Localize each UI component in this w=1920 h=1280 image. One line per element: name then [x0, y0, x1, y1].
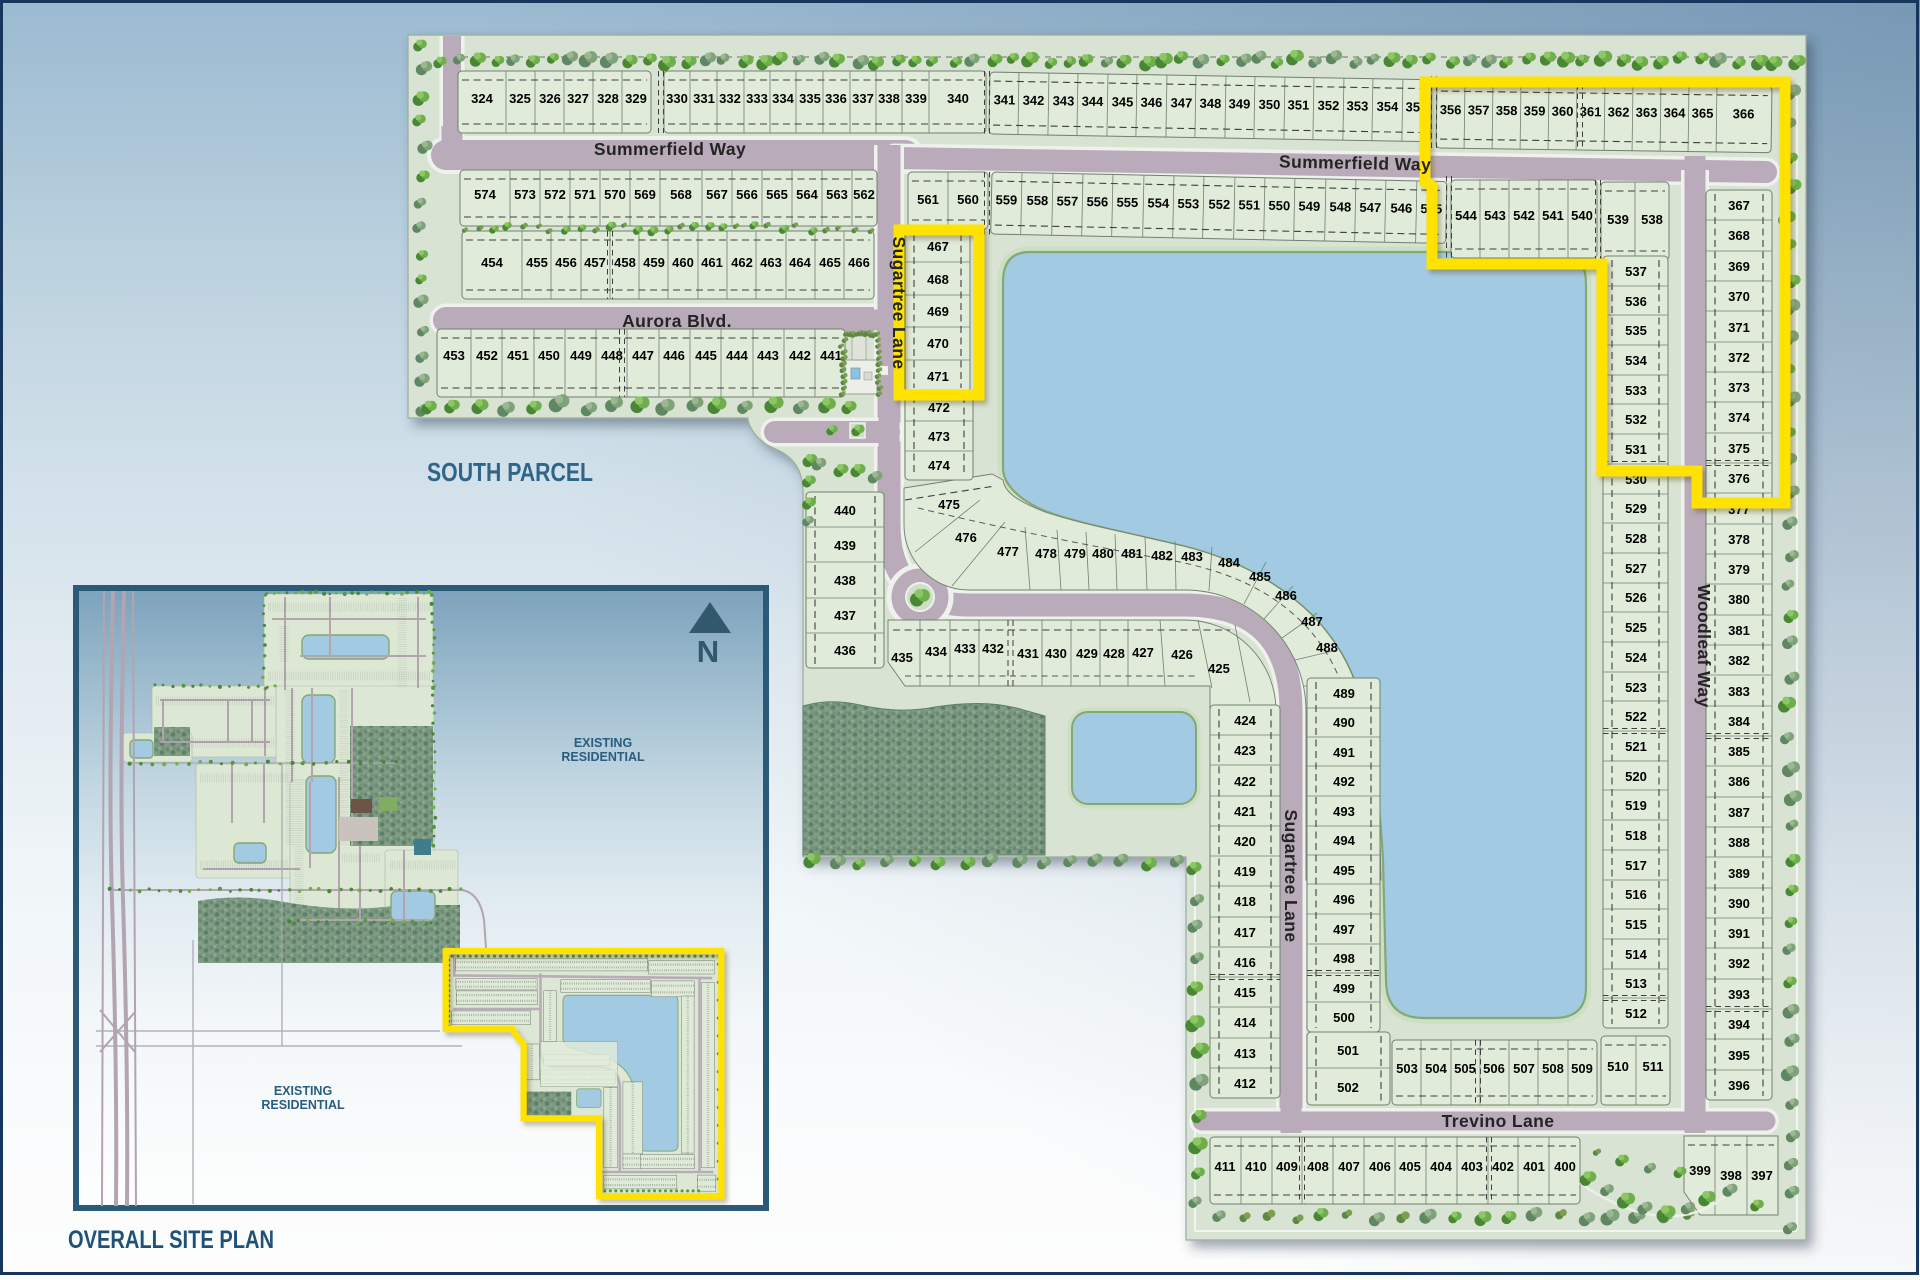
- svg-text:337: 337: [852, 91, 874, 106]
- svg-text:541: 541: [1542, 208, 1564, 223]
- svg-text:461: 461: [701, 255, 723, 270]
- svg-text:424: 424: [1234, 713, 1256, 728]
- svg-text:395: 395: [1728, 1048, 1750, 1063]
- svg-text:447: 447: [632, 348, 654, 363]
- svg-text:418: 418: [1234, 894, 1256, 909]
- svg-text:431: 431: [1017, 646, 1039, 661]
- svg-text:493: 493: [1333, 804, 1355, 819]
- svg-text:Woodleaf Way: Woodleaf Way: [1694, 584, 1714, 707]
- svg-text:406: 406: [1369, 1159, 1391, 1174]
- svg-text:RESIDENTIAL: RESIDENTIAL: [561, 750, 645, 764]
- svg-text:536: 536: [1625, 294, 1647, 309]
- svg-text:391: 391: [1728, 926, 1750, 941]
- svg-text:505: 505: [1454, 1061, 1476, 1076]
- svg-text:358: 358: [1496, 103, 1518, 118]
- svg-text:384: 384: [1728, 714, 1750, 729]
- svg-text:328: 328: [597, 91, 619, 106]
- svg-text:374: 374: [1728, 410, 1750, 425]
- svg-text:494: 494: [1333, 833, 1355, 848]
- svg-text:387: 387: [1728, 805, 1750, 820]
- svg-text:381: 381: [1728, 623, 1750, 638]
- svg-text:394: 394: [1728, 1017, 1750, 1032]
- svg-text:574: 574: [474, 187, 496, 202]
- svg-text:Summerfield Way: Summerfield Way: [594, 139, 746, 159]
- svg-text:468: 468: [927, 272, 949, 287]
- svg-text:495: 495: [1333, 863, 1355, 878]
- svg-text:482: 482: [1151, 548, 1173, 563]
- svg-text:524: 524: [1625, 650, 1647, 665]
- svg-text:343: 343: [1053, 93, 1075, 108]
- svg-text:534: 534: [1625, 353, 1647, 368]
- svg-text:502: 502: [1337, 1080, 1359, 1095]
- svg-text:559: 559: [995, 192, 1017, 207]
- svg-text:569: 569: [634, 187, 656, 202]
- svg-text:376: 376: [1728, 471, 1750, 486]
- svg-text:356: 356: [1440, 102, 1462, 117]
- svg-text:519: 519: [1625, 798, 1647, 813]
- svg-text:360: 360: [1552, 104, 1574, 119]
- svg-text:508: 508: [1542, 1061, 1564, 1076]
- svg-text:382: 382: [1728, 653, 1750, 668]
- svg-text:335: 335: [799, 91, 821, 106]
- svg-text:464: 464: [789, 255, 811, 270]
- svg-text:341: 341: [994, 92, 1016, 107]
- svg-text:538: 538: [1641, 212, 1663, 227]
- svg-text:523: 523: [1625, 680, 1647, 695]
- svg-text:515: 515: [1625, 917, 1647, 932]
- svg-text:EXISTING: EXISTING: [274, 1084, 332, 1098]
- svg-text:339: 339: [905, 91, 927, 106]
- svg-text:428: 428: [1103, 646, 1125, 661]
- svg-text:451: 451: [507, 348, 529, 363]
- svg-text:346: 346: [1141, 95, 1163, 110]
- svg-text:Sugartree Lane: Sugartree Lane: [1281, 809, 1301, 942]
- svg-text:388: 388: [1728, 835, 1750, 850]
- svg-text:499: 499: [1333, 981, 1355, 996]
- svg-text:441: 441: [820, 348, 842, 363]
- svg-text:484: 484: [1218, 555, 1240, 570]
- svg-text:367: 367: [1728, 198, 1750, 213]
- svg-text:474: 474: [928, 458, 950, 473]
- svg-text:503: 503: [1396, 1061, 1418, 1076]
- svg-text:362: 362: [1608, 104, 1630, 119]
- svg-text:369: 369: [1728, 259, 1750, 274]
- svg-text:425: 425: [1208, 661, 1230, 676]
- svg-text:548: 548: [1329, 199, 1351, 214]
- svg-text:535: 535: [1625, 323, 1647, 338]
- svg-text:526: 526: [1625, 590, 1647, 605]
- svg-text:336: 336: [825, 91, 847, 106]
- svg-text:409: 409: [1276, 1159, 1298, 1174]
- svg-text:347: 347: [1171, 95, 1193, 110]
- svg-text:507: 507: [1513, 1061, 1535, 1076]
- svg-text:380: 380: [1728, 592, 1750, 607]
- svg-text:326: 326: [539, 91, 561, 106]
- svg-text:Summerfield Way: Summerfield Way: [1279, 151, 1432, 174]
- svg-text:551: 551: [1238, 197, 1260, 212]
- svg-text:514: 514: [1625, 947, 1647, 962]
- svg-text:368: 368: [1728, 228, 1750, 243]
- svg-text:403: 403: [1461, 1159, 1483, 1174]
- svg-text:422: 422: [1234, 774, 1256, 789]
- svg-text:532: 532: [1625, 412, 1647, 427]
- svg-text:547: 547: [1359, 200, 1381, 215]
- svg-text:392: 392: [1728, 956, 1750, 971]
- svg-text:511: 511: [1643, 1059, 1664, 1074]
- svg-text:371: 371: [1728, 320, 1750, 335]
- svg-text:350: 350: [1258, 97, 1280, 112]
- svg-text:N: N: [697, 634, 719, 669]
- svg-text:539: 539: [1607, 212, 1629, 227]
- svg-text:462: 462: [731, 255, 753, 270]
- svg-text:573: 573: [514, 187, 536, 202]
- svg-text:334: 334: [772, 91, 794, 106]
- svg-text:398: 398: [1720, 1168, 1742, 1183]
- svg-text:354: 354: [1376, 99, 1399, 114]
- svg-text:375: 375: [1728, 441, 1750, 456]
- svg-text:561: 561: [917, 192, 939, 207]
- svg-text:528: 528: [1625, 531, 1647, 546]
- svg-text:554: 554: [1147, 195, 1170, 210]
- svg-text:465: 465: [819, 255, 841, 270]
- svg-text:329: 329: [625, 91, 647, 106]
- svg-text:560: 560: [957, 192, 979, 207]
- svg-text:469: 469: [927, 304, 949, 319]
- svg-text:390: 390: [1728, 896, 1750, 911]
- svg-text:542: 542: [1513, 208, 1535, 223]
- svg-text:552: 552: [1208, 197, 1230, 212]
- svg-text:330: 330: [666, 91, 688, 106]
- svg-text:433: 433: [954, 641, 976, 656]
- svg-text:453: 453: [443, 348, 465, 363]
- svg-text:445: 445: [695, 348, 717, 363]
- svg-text:348: 348: [1200, 96, 1222, 111]
- svg-text:373: 373: [1728, 380, 1750, 395]
- svg-text:SOUTH PARCEL: SOUTH PARCEL: [427, 457, 593, 487]
- svg-text:497: 497: [1333, 922, 1355, 937]
- svg-text:487: 487: [1301, 614, 1323, 629]
- svg-text:553: 553: [1177, 196, 1199, 211]
- svg-text:364: 364: [1664, 105, 1687, 120]
- svg-text:420: 420: [1234, 834, 1256, 849]
- svg-text:386: 386: [1728, 774, 1750, 789]
- svg-text:491: 491: [1333, 745, 1355, 760]
- svg-text:327: 327: [567, 91, 589, 106]
- svg-text:498: 498: [1333, 951, 1355, 966]
- svg-text:444: 444: [726, 348, 748, 363]
- svg-text:550: 550: [1268, 198, 1290, 213]
- svg-text:459: 459: [643, 255, 665, 270]
- svg-text:434: 434: [925, 644, 947, 659]
- svg-text:430: 430: [1045, 646, 1067, 661]
- svg-text:570: 570: [604, 187, 626, 202]
- svg-text:410: 410: [1245, 1159, 1267, 1174]
- svg-text:353: 353: [1346, 98, 1368, 113]
- svg-text:456: 456: [555, 255, 577, 270]
- svg-text:517: 517: [1625, 858, 1647, 873]
- svg-text:533: 533: [1625, 383, 1647, 398]
- svg-text:489: 489: [1333, 686, 1355, 701]
- svg-text:463: 463: [760, 255, 782, 270]
- svg-text:379: 379: [1728, 562, 1750, 577]
- svg-text:544: 544: [1455, 208, 1477, 223]
- svg-text:567: 567: [706, 187, 728, 202]
- svg-text:546: 546: [1390, 200, 1412, 215]
- svg-text:411: 411: [1215, 1159, 1236, 1174]
- svg-text:501: 501: [1337, 1043, 1359, 1058]
- svg-text:457: 457: [584, 255, 606, 270]
- svg-text:490: 490: [1333, 715, 1355, 730]
- svg-text:408: 408: [1307, 1159, 1329, 1174]
- svg-text:486: 486: [1275, 588, 1297, 603]
- svg-text:470: 470: [927, 336, 949, 351]
- svg-text:416: 416: [1234, 955, 1256, 970]
- svg-text:OVERALL SITE PLAN: OVERALL SITE PLAN: [68, 1226, 274, 1254]
- svg-text:396: 396: [1728, 1078, 1750, 1093]
- svg-text:466: 466: [848, 255, 870, 270]
- svg-text:509: 509: [1571, 1061, 1593, 1076]
- svg-text:537: 537: [1625, 264, 1647, 279]
- svg-text:415: 415: [1234, 985, 1256, 1000]
- svg-text:475: 475: [938, 497, 960, 512]
- svg-text:483: 483: [1181, 549, 1203, 564]
- svg-text:417: 417: [1234, 925, 1256, 940]
- svg-text:338: 338: [878, 91, 900, 106]
- svg-text:510: 510: [1607, 1059, 1629, 1074]
- svg-text:549: 549: [1298, 198, 1320, 213]
- svg-text:564: 564: [796, 187, 818, 202]
- svg-text:566: 566: [736, 187, 758, 202]
- svg-text:555: 555: [1116, 195, 1138, 210]
- svg-text:366: 366: [1733, 106, 1755, 121]
- svg-text:516: 516: [1625, 887, 1647, 902]
- svg-text:443: 443: [757, 348, 779, 363]
- svg-text:455: 455: [526, 255, 548, 270]
- svg-text:480: 480: [1092, 546, 1114, 561]
- svg-text:467: 467: [927, 239, 949, 254]
- svg-text:557: 557: [1056, 193, 1078, 208]
- svg-text:520: 520: [1625, 769, 1647, 784]
- svg-text:504: 504: [1425, 1061, 1447, 1076]
- svg-text:393: 393: [1728, 987, 1750, 1002]
- svg-text:478: 478: [1035, 546, 1057, 561]
- svg-text:399: 399: [1689, 1163, 1711, 1178]
- svg-text:435: 435: [891, 650, 913, 665]
- svg-text:460: 460: [672, 255, 694, 270]
- svg-text:Aurora Blvd.: Aurora Blvd.: [622, 311, 732, 331]
- svg-text:440: 440: [834, 503, 856, 518]
- svg-text:471: 471: [927, 369, 949, 384]
- svg-text:485: 485: [1249, 569, 1271, 584]
- svg-text:436: 436: [834, 643, 856, 658]
- svg-text:385: 385: [1728, 744, 1750, 759]
- svg-text:446: 446: [663, 348, 685, 363]
- svg-text:349: 349: [1229, 96, 1251, 111]
- svg-text:389: 389: [1728, 866, 1750, 881]
- svg-text:479: 479: [1064, 546, 1086, 561]
- svg-text:333: 333: [746, 91, 768, 106]
- svg-text:527: 527: [1625, 561, 1647, 576]
- svg-text:427: 427: [1132, 645, 1154, 660]
- svg-text:529: 529: [1625, 501, 1647, 516]
- svg-text:540: 540: [1571, 208, 1593, 223]
- svg-text:531: 531: [1625, 442, 1647, 457]
- svg-text:372: 372: [1728, 350, 1750, 365]
- svg-text:473: 473: [928, 429, 950, 444]
- svg-text:481: 481: [1121, 546, 1143, 561]
- svg-text:423: 423: [1234, 743, 1256, 758]
- svg-text:EXISTING: EXISTING: [574, 736, 632, 750]
- svg-text:558: 558: [1026, 193, 1048, 208]
- svg-text:Sugartree Lane: Sugartree Lane: [889, 236, 909, 369]
- svg-text:402: 402: [1492, 1159, 1514, 1174]
- svg-text:401: 401: [1523, 1159, 1545, 1174]
- svg-text:404: 404: [1430, 1159, 1452, 1174]
- svg-text:458: 458: [614, 255, 636, 270]
- svg-text:442: 442: [789, 348, 811, 363]
- svg-text:378: 378: [1728, 532, 1750, 547]
- svg-text:407: 407: [1338, 1159, 1360, 1174]
- svg-text:405: 405: [1399, 1159, 1421, 1174]
- svg-text:365: 365: [1692, 106, 1714, 121]
- svg-text:512: 512: [1625, 1006, 1647, 1021]
- svg-text:521: 521: [1625, 739, 1647, 754]
- svg-text:RESIDENTIAL: RESIDENTIAL: [261, 1098, 345, 1112]
- svg-text:352: 352: [1317, 98, 1339, 113]
- svg-text:556: 556: [1086, 194, 1108, 209]
- svg-text:359: 359: [1524, 103, 1546, 118]
- svg-text:397: 397: [1751, 1168, 1773, 1183]
- svg-text:562: 562: [853, 187, 875, 202]
- svg-text:450: 450: [538, 348, 560, 363]
- svg-text:572: 572: [544, 187, 566, 202]
- svg-text:340: 340: [947, 91, 969, 106]
- svg-text:543: 543: [1484, 208, 1506, 223]
- svg-text:565: 565: [766, 187, 788, 202]
- svg-text:488: 488: [1316, 640, 1338, 655]
- svg-text:477: 477: [997, 544, 1019, 559]
- svg-text:413: 413: [1234, 1046, 1256, 1061]
- svg-text:400: 400: [1554, 1159, 1576, 1174]
- svg-text:518: 518: [1625, 828, 1647, 843]
- svg-text:432: 432: [982, 641, 1004, 656]
- svg-text:568: 568: [670, 187, 692, 202]
- svg-text:492: 492: [1333, 774, 1355, 789]
- svg-text:429: 429: [1076, 646, 1098, 661]
- svg-text:472: 472: [928, 400, 950, 415]
- svg-text:419: 419: [1234, 864, 1256, 879]
- svg-text:344: 344: [1082, 94, 1105, 109]
- svg-text:454: 454: [481, 255, 503, 270]
- svg-text:439: 439: [834, 538, 856, 553]
- svg-text:438: 438: [834, 573, 856, 588]
- svg-text:437: 437: [834, 608, 856, 623]
- svg-text:325: 325: [509, 91, 531, 106]
- svg-text:571: 571: [574, 187, 596, 202]
- svg-text:342: 342: [1023, 93, 1045, 108]
- svg-text:351: 351: [1287, 97, 1309, 112]
- svg-text:414: 414: [1234, 1015, 1256, 1030]
- svg-text:476: 476: [955, 530, 977, 545]
- svg-text:522: 522: [1625, 709, 1647, 724]
- svg-text:345: 345: [1112, 94, 1134, 109]
- svg-text:357: 357: [1468, 102, 1490, 117]
- svg-text:452: 452: [476, 348, 498, 363]
- svg-text:363: 363: [1636, 105, 1658, 120]
- svg-text:449: 449: [570, 348, 592, 363]
- svg-text:Trevino Lane: Trevino Lane: [1442, 1111, 1555, 1131]
- svg-text:563: 563: [826, 187, 848, 202]
- svg-text:324: 324: [471, 91, 493, 106]
- svg-text:383: 383: [1728, 684, 1750, 699]
- svg-text:426: 426: [1171, 647, 1193, 662]
- svg-text:500: 500: [1333, 1010, 1355, 1025]
- svg-text:421: 421: [1234, 804, 1256, 819]
- svg-text:496: 496: [1333, 892, 1355, 907]
- svg-text:331: 331: [693, 91, 715, 106]
- svg-text:506: 506: [1483, 1061, 1505, 1076]
- svg-text:412: 412: [1234, 1076, 1256, 1091]
- svg-text:513: 513: [1625, 976, 1647, 991]
- svg-text:332: 332: [719, 91, 741, 106]
- svg-text:525: 525: [1625, 620, 1647, 635]
- svg-text:370: 370: [1728, 289, 1750, 304]
